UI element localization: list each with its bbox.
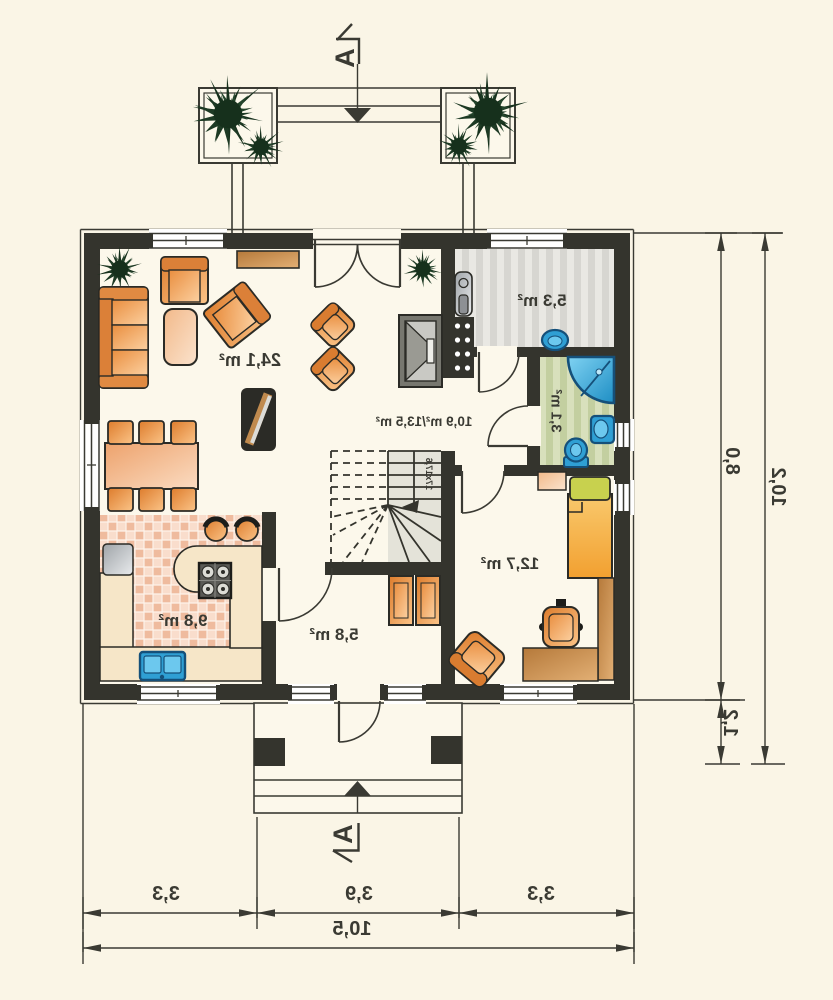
svg-text:9,8 m²: 9,8 m² [158, 611, 207, 630]
svg-text:3,3: 3,3 [527, 883, 555, 905]
svg-text:A: A [330, 48, 360, 68]
svg-text:1,2: 1,2 [719, 709, 741, 737]
svg-text:24,1 m²: 24,1 m² [219, 350, 281, 370]
svg-text:12,7 m²: 12,7 m² [480, 554, 539, 573]
svg-text:3,1 m²: 3,1 m² [548, 389, 565, 432]
svg-text:10,9 m²/13,5 m²: 10,9 m²/13,5 m² [375, 414, 472, 429]
svg-text:10,2: 10,2 [767, 468, 789, 507]
svg-text:10,5: 10,5 [333, 918, 372, 940]
svg-text:5,3 m²: 5,3 m² [517, 291, 566, 310]
svg-text:3,3: 3,3 [152, 883, 180, 905]
svg-text:A: A [328, 824, 358, 844]
svg-text:8,0: 8,0 [721, 447, 743, 475]
svg-text:17x17,6: 17x17,6 [424, 458, 434, 491]
svg-text:5,8 m²: 5,8 m² [309, 625, 358, 644]
svg-text:3,9: 3,9 [345, 883, 373, 905]
